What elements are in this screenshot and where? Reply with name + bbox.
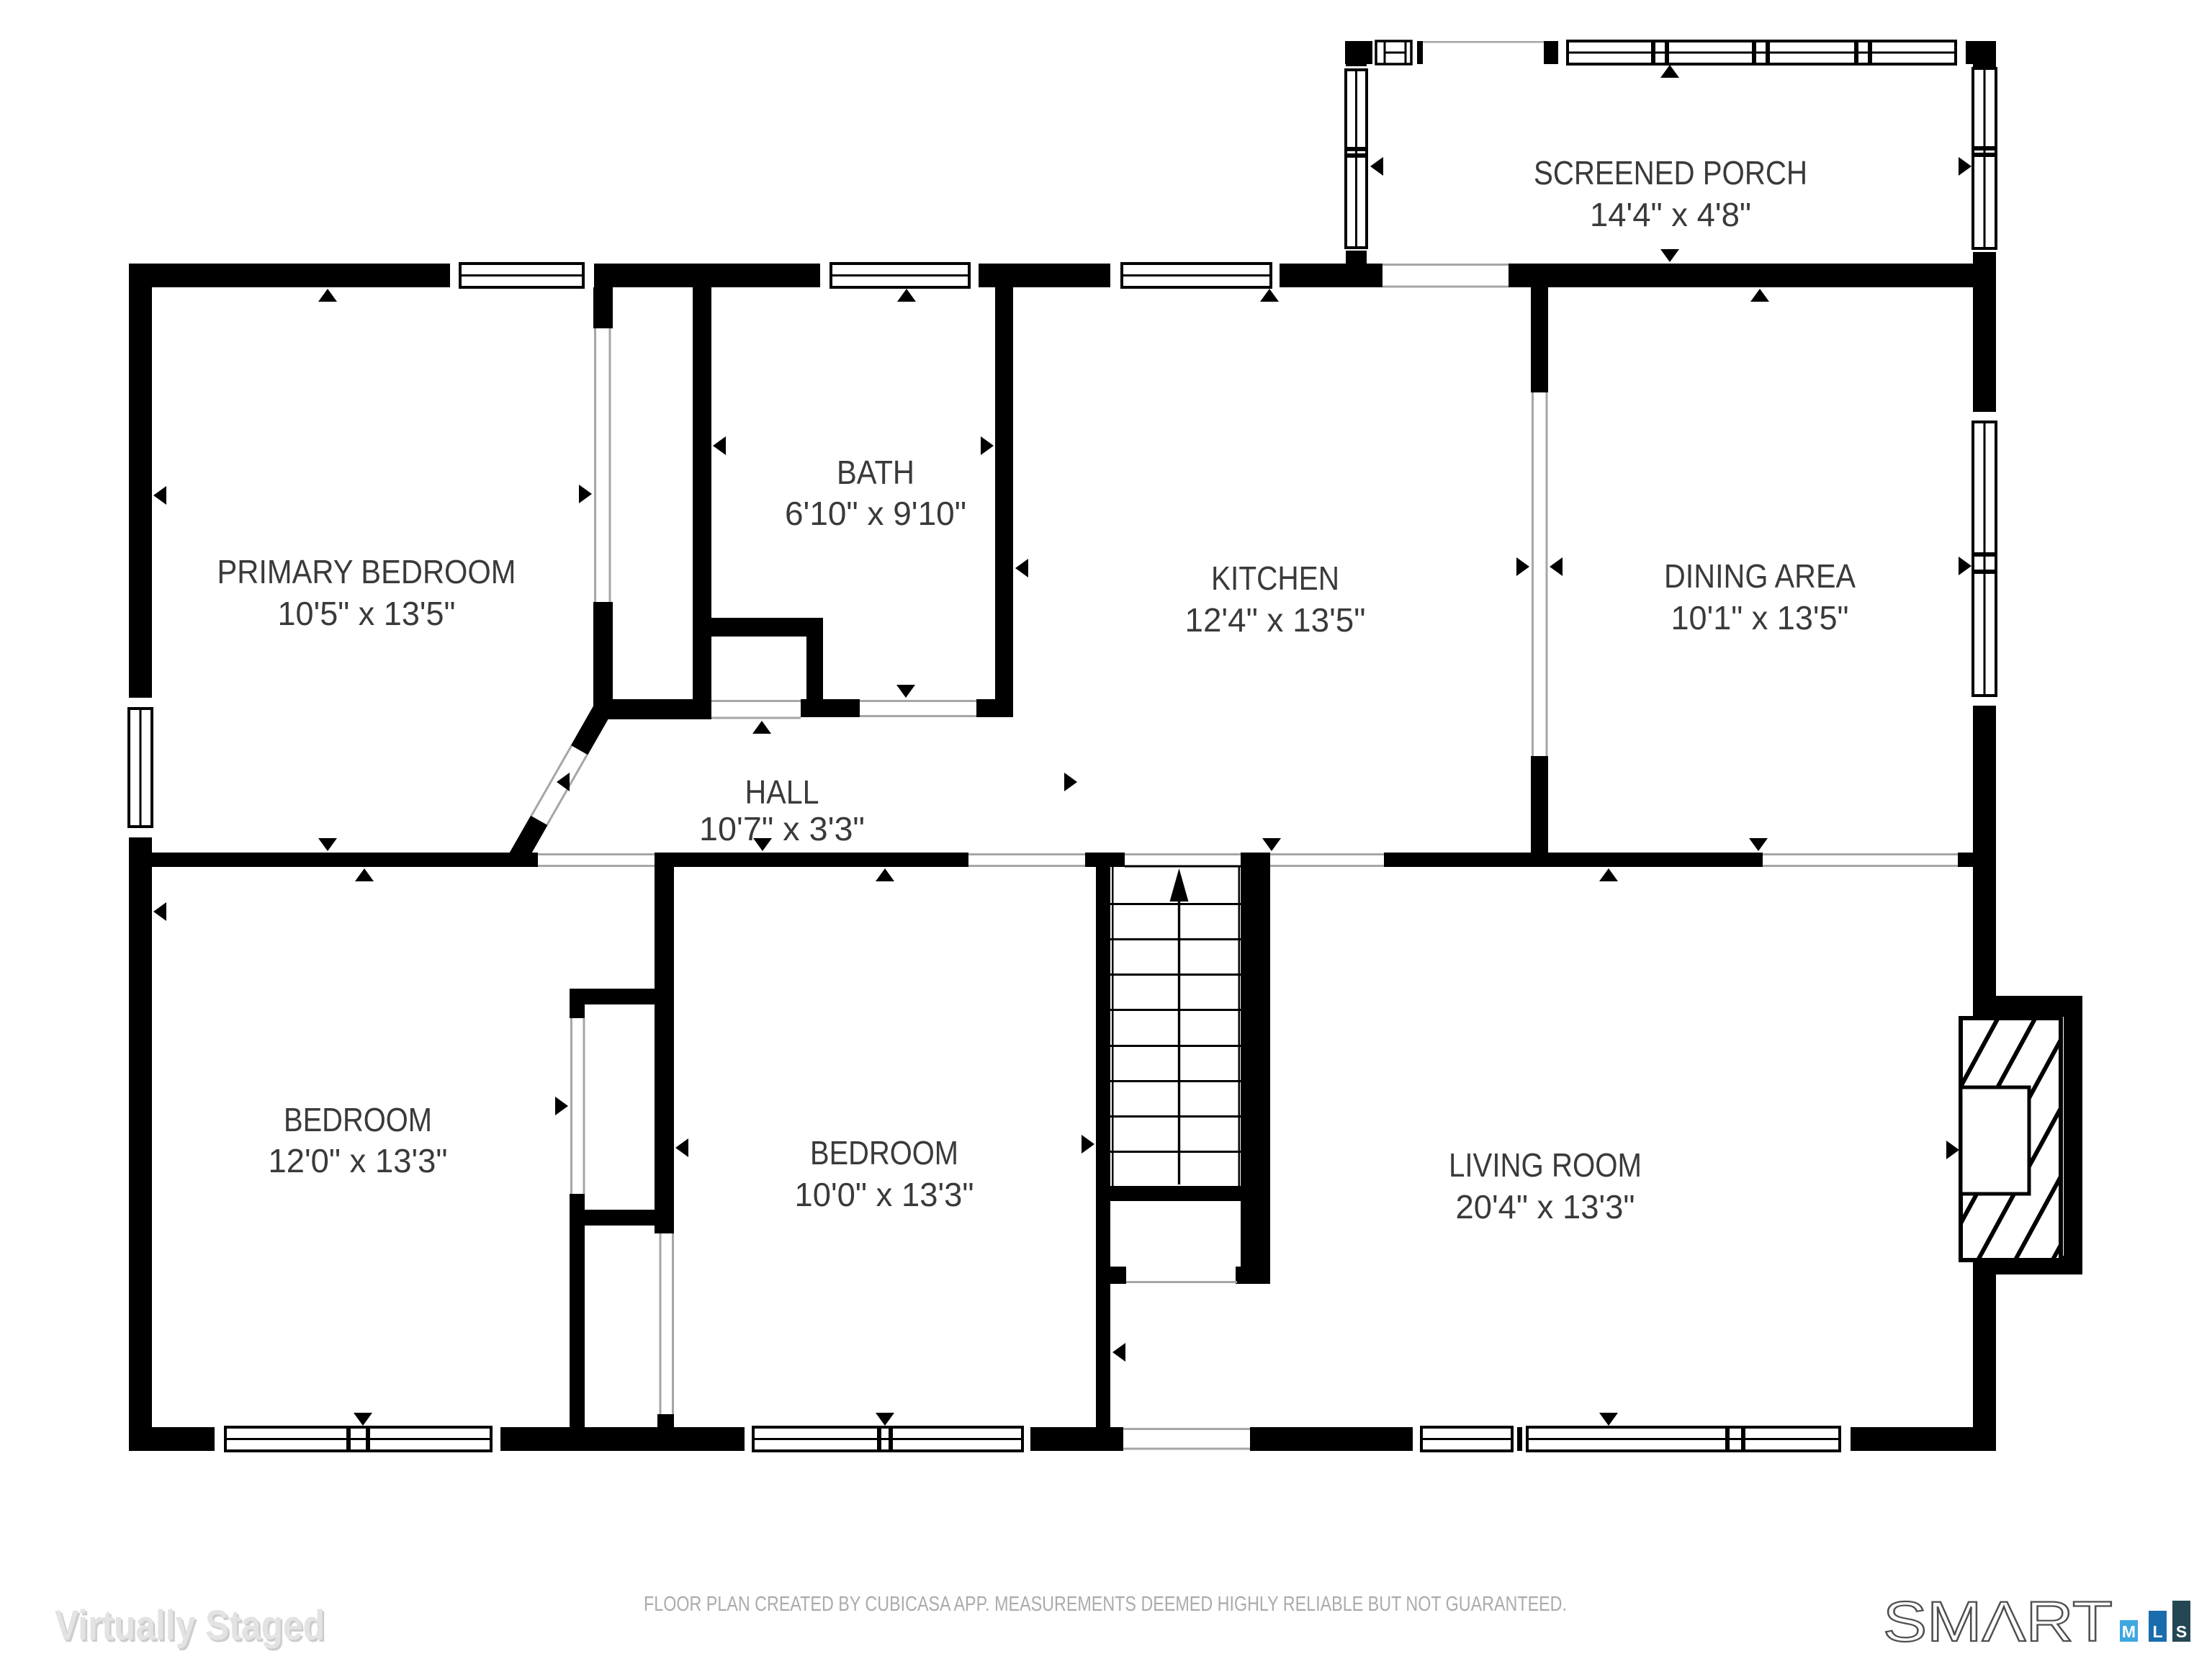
svg-text:BEDROOM: BEDROOM xyxy=(284,1101,432,1138)
svg-text:BEDROOM: BEDROOM xyxy=(810,1134,958,1172)
svg-text:DINING AREA: DINING AREA xyxy=(1664,557,1856,595)
svg-text:BATH: BATH xyxy=(837,454,914,491)
svg-text:LIVING ROOM: LIVING ROOM xyxy=(1449,1146,1642,1184)
svg-text:Virtually Staged: Virtually Staged xyxy=(55,1602,325,1649)
svg-text:10'1" x 13'5": 10'1" x 13'5" xyxy=(1671,599,1849,637)
svg-text:KITCHEN: KITCHEN xyxy=(1211,559,1339,597)
svg-text:12'4" x 13'5": 12'4" x 13'5" xyxy=(1185,601,1366,639)
svg-text:10'5" x 13'5": 10'5" x 13'5" xyxy=(278,595,456,632)
svg-text:SCREENED PORCH: SCREENED PORCH xyxy=(1534,154,1807,192)
svg-text:SMΛRT: SMΛRT xyxy=(1883,1589,2113,1653)
svg-text:20'4" x 13'3": 20'4" x 13'3" xyxy=(1456,1188,1635,1226)
svg-text:12'0" x 13'3": 12'0" x 13'3" xyxy=(269,1142,448,1179)
svg-text:PRIMARY BEDROOM: PRIMARY BEDROOM xyxy=(217,553,516,590)
svg-text:FLOOR PLAN CREATED BY CUBICASA: FLOOR PLAN CREATED BY CUBICASA APP. MEAS… xyxy=(644,1593,1567,1616)
svg-text:M: M xyxy=(2122,1622,2136,1641)
svg-text:10'0" x 13'3": 10'0" x 13'3" xyxy=(795,1176,974,1213)
svg-text:S: S xyxy=(2176,1622,2187,1641)
svg-text:6'10" x 9'10": 6'10" x 9'10" xyxy=(785,495,966,532)
svg-text:14'4" x 4'8": 14'4" x 4'8" xyxy=(1590,196,1751,233)
svg-text:HALL: HALL xyxy=(745,773,819,811)
svg-text:10'7" x 3'3": 10'7" x 3'3" xyxy=(699,810,865,848)
svg-text:L: L xyxy=(2152,1622,2162,1641)
